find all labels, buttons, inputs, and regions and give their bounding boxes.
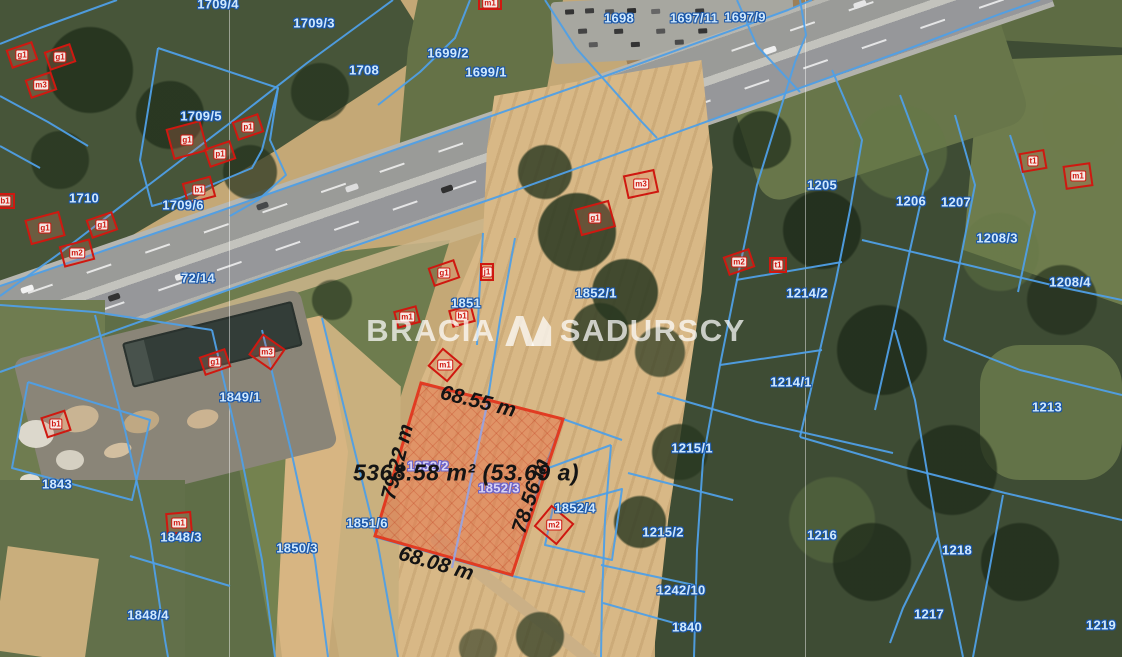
labels-layer: 1709/41709/316981697/111697/91699/21699/… xyxy=(0,0,1122,657)
building-label-m3: m3 xyxy=(633,179,649,190)
building-label-m1: m1 xyxy=(399,312,415,323)
building-label-m3: m3 xyxy=(33,80,49,91)
building-label-g1: g1 xyxy=(95,220,108,231)
parcel-label-1242-10: 1242/10 xyxy=(656,583,705,598)
parcel-label-1218: 1218 xyxy=(942,543,972,558)
parcel-label-1852-1: 1852/1 xyxy=(575,286,617,301)
building-label-m2: m2 xyxy=(546,520,562,531)
parcel-label-1852-3: 1852/3 xyxy=(478,481,520,496)
building-label-g1: g1 xyxy=(437,268,450,279)
parcel-label-1205: 1205 xyxy=(807,178,837,193)
parcel-label-1849-1: 1849/1 xyxy=(219,390,261,405)
parcel-label-1848-4: 1848/4 xyxy=(127,608,169,623)
parcel-label-1699-1: 1699/1 xyxy=(465,65,507,80)
parcel-label-1851: 1851 xyxy=(451,296,481,311)
building-label-g1: g1 xyxy=(208,357,221,368)
building-label-g1: g1 xyxy=(38,223,51,234)
building-label-b1: b1 xyxy=(0,196,12,207)
parcel-label-1709-5: 1709/5 xyxy=(180,109,222,124)
parcel-label-1848-3: 1848/3 xyxy=(160,530,202,545)
parcel-label-1698: 1698 xyxy=(604,11,634,26)
parcel-label-1697-9: 1697/9 xyxy=(724,10,766,25)
building-label-b1: b1 xyxy=(455,311,468,322)
parcel-label-1708: 1708 xyxy=(349,63,379,78)
parcel-label-1710: 1710 xyxy=(69,191,99,206)
building-label-p1: p1 xyxy=(213,149,226,160)
parcel-label-1215-2: 1215/2 xyxy=(642,525,684,540)
parcel-label-1697-11: 1697/11 xyxy=(670,11,718,26)
parcel-label-1213: 1213 xyxy=(1032,400,1062,415)
building-label-g1: g1 xyxy=(588,213,601,224)
parcel-label-1709-3: 1709/3 xyxy=(293,16,335,31)
parcel-label-1843: 1843 xyxy=(42,477,72,492)
parcel-label-1709-6: 1709/6 xyxy=(162,198,204,213)
building-label-m1: m1 xyxy=(482,0,498,9)
parcel-label-1709-4: 1709/4 xyxy=(197,0,239,12)
building-label-t1: t1 xyxy=(772,260,783,271)
building-label-m1: m1 xyxy=(171,518,187,529)
building-label-m3: m3 xyxy=(259,347,275,358)
building-label-b1: b1 xyxy=(49,419,62,430)
parcel-label-1699-2: 1699/2 xyxy=(427,46,469,61)
parcel-label-1850-3: 1850/3 xyxy=(276,541,318,556)
building-label-m1: m1 xyxy=(437,360,453,371)
building-label-t1: t1 xyxy=(1027,156,1038,167)
parcel-label-1216: 1216 xyxy=(807,528,837,543)
building-label-j1: j1 xyxy=(482,267,493,278)
parcel-label-1208-3: 1208/3 xyxy=(976,231,1018,246)
parcel-label-1214-1: 1214/1 xyxy=(770,375,812,390)
building-label-p1: p1 xyxy=(241,122,254,133)
parcel-label-1214-2: 1214/2 xyxy=(786,286,828,301)
parcel-label-1208-4: 1208/4 xyxy=(1049,275,1091,290)
building-label-g1: g1 xyxy=(180,135,193,146)
map-canvas[interactable]: 1709/41709/316981697/111697/91699/21699/… xyxy=(0,0,1122,657)
parcel-label-72-14: 72/14 xyxy=(181,271,215,286)
parcel-label-1852-4: 1852/4 xyxy=(554,501,596,516)
building-label-g1: g1 xyxy=(15,50,28,61)
parcel-label-1207: 1207 xyxy=(941,195,971,210)
parcel-label-1840: 1840 xyxy=(672,620,702,635)
parcel-label-1851-6: 1851/6 xyxy=(346,516,388,531)
building-label-m2: m2 xyxy=(731,257,747,268)
building-label-m2: m2 xyxy=(69,248,85,259)
parcel-label-1215-1: 1215/1 xyxy=(671,441,713,456)
building-label-m1: m1 xyxy=(1070,171,1086,182)
building-label-g1: g1 xyxy=(53,52,66,63)
parcel-label-1219: 1219 xyxy=(1086,618,1116,633)
building-label-b1: b1 xyxy=(192,185,205,196)
parcel-label-1206: 1206 xyxy=(896,194,926,209)
parcel-label-1852-2: 1852/2 xyxy=(407,459,449,474)
parcel-label-1217: 1217 xyxy=(914,607,944,622)
